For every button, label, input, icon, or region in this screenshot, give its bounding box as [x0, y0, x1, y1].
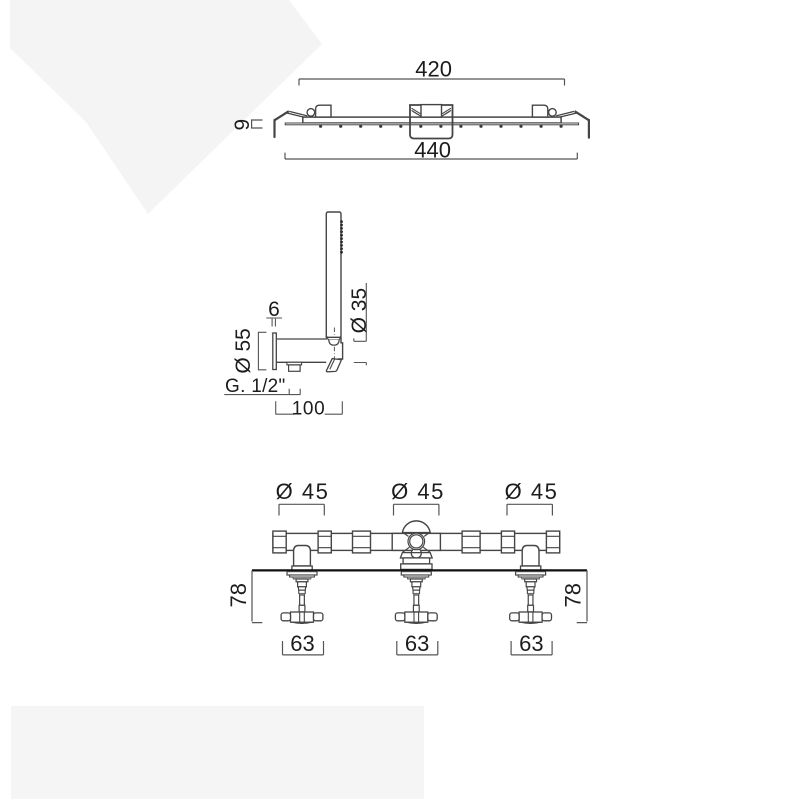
svg-text:78: 78 [226, 583, 251, 607]
svg-text:G. 1/2": G. 1/2" [225, 376, 286, 397]
svg-text:63: 63 [405, 631, 429, 656]
svg-text:Ø 45: Ø 45 [276, 479, 330, 504]
svg-text:100: 100 [292, 399, 326, 420]
svg-text:63: 63 [519, 631, 543, 656]
svg-text:Ø 45: Ø 45 [505, 479, 559, 504]
svg-text:6: 6 [268, 298, 280, 321]
svg-text:Ø 45: Ø 45 [391, 479, 445, 504]
svg-text:420: 420 [415, 56, 452, 81]
svg-text:63: 63 [290, 631, 314, 656]
svg-text:Ø 55: Ø 55 [232, 328, 255, 374]
svg-text:9: 9 [231, 119, 254, 131]
svg-text:Ø 35: Ø 35 [348, 288, 371, 334]
svg-text:440: 440 [414, 138, 451, 163]
svg-text:78: 78 [561, 583, 586, 607]
